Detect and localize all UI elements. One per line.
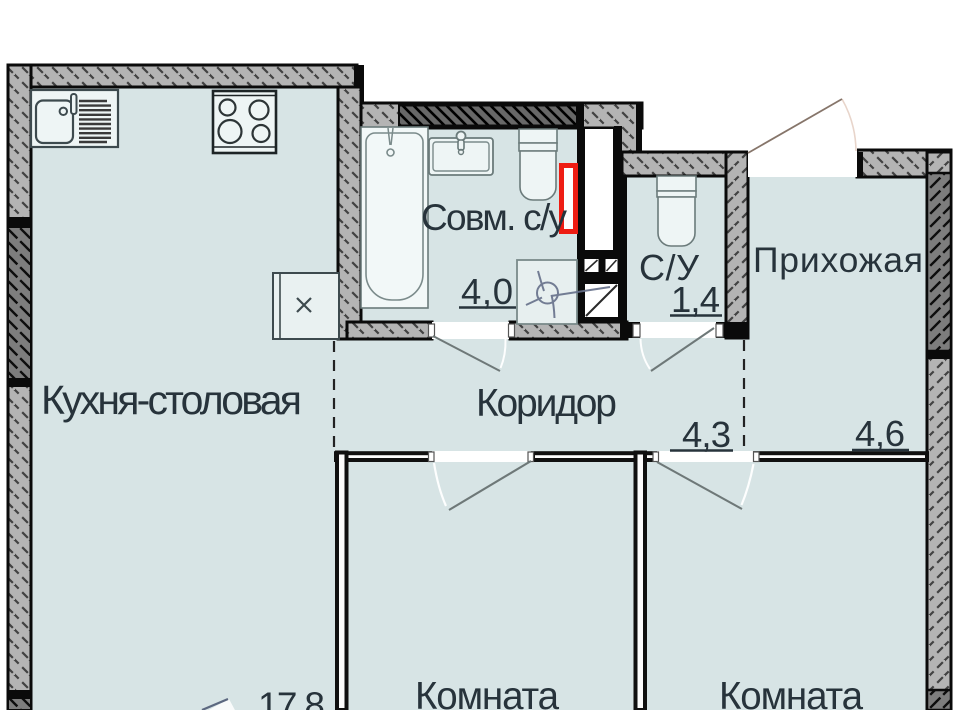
svg-text:Кухня-столовая: Кухня-столовая: [41, 377, 302, 423]
svg-text:4,3: 4,3: [682, 414, 731, 455]
svg-text:4,0: 4,0: [461, 271, 513, 312]
svg-text:1,4: 1,4: [671, 279, 720, 320]
svg-text:4,6: 4,6: [855, 413, 905, 454]
svg-text:Совм. с/у: Совм. с/у: [421, 197, 568, 238]
svg-text:Комната: Комната: [719, 675, 864, 710]
svg-text:Комната: Комната: [415, 675, 560, 710]
svg-text:Коридор: Коридор: [476, 382, 617, 425]
svg-text:17,8: 17,8: [258, 685, 325, 710]
svg-text:Прихожая: Прихожая: [753, 240, 923, 280]
